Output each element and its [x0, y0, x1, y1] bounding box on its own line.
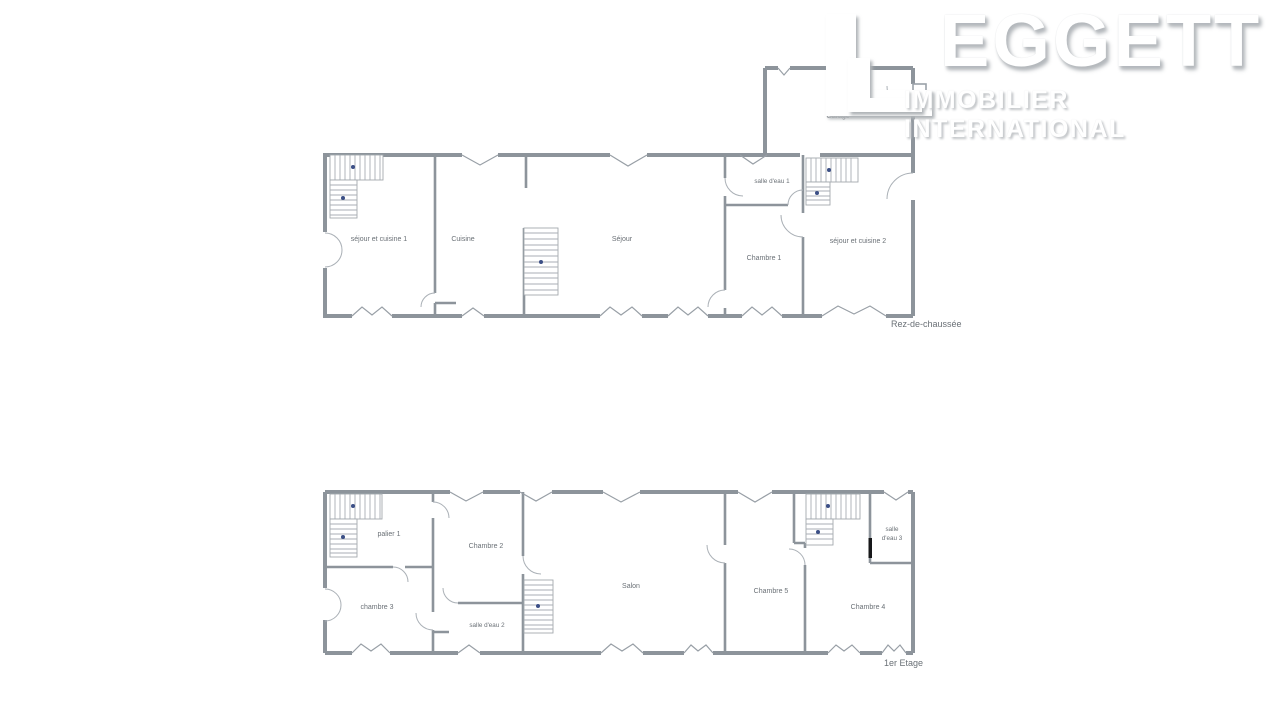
first-floor-doors [325, 502, 805, 630]
first-floor-plan: palier 1 Chambre 2 chambre 3 salle d'eau… [325, 492, 923, 668]
room-label-salle-eau-1: salle d'eau 1 [754, 178, 790, 185]
logo-brand-text: EGGETT [940, 0, 1262, 83]
leggett-logo: EGGETT IMMOBILIER INTERNATIONAL [818, 6, 1278, 124]
staircase-first-left [330, 494, 382, 557]
room-label-salle-eau-3-line2: d'eau 3 [882, 535, 903, 542]
logo-tagline-text: IMMOBILIER INTERNATIONAL [904, 86, 1278, 144]
floor-label-first: 1er Etage [884, 658, 923, 668]
room-label-chambre-3: chambre 3 [360, 604, 393, 611]
floor-label-ground: Rez-de-chaussée [891, 319, 962, 329]
staircase-ground-left [330, 155, 383, 218]
room-label-chambre-1: Chambre 1 [747, 255, 782, 262]
staircase-ground-right [806, 158, 858, 205]
staircase-ground-center [524, 228, 558, 295]
room-label-sejour-cuisine-2: séjour et cuisine 2 [830, 238, 887, 245]
salle-eau-3-door-leaf [869, 538, 873, 558]
room-label-salle-eau-3-line1: salle [886, 526, 899, 533]
room-label-salle-eau-2: salle d'eau 2 [469, 622, 505, 629]
staircase-first-right [806, 494, 860, 545]
room-label-chambre-2: Chambre 2 [469, 543, 504, 550]
room-label-sejour-cuisine-1: séjour et cuisine 1 [351, 236, 408, 243]
room-label-sejour: Séjour [612, 236, 633, 243]
room-label-cuisine: Cuisine [451, 236, 474, 243]
logo-brand-rest: EGGETT [940, 0, 1262, 82]
floorplan-page: séjour et cuisine 1 Cuisine Séjour salle… [0, 0, 1280, 720]
room-label-chambre-5: Chambre 5 [754, 588, 789, 595]
room-label-palier-1: palier 1 [378, 531, 401, 538]
staircase-first-center [524, 580, 553, 633]
room-label-salon: Salon [622, 583, 640, 590]
room-label-chambre-4: Chambre 4 [851, 604, 886, 611]
